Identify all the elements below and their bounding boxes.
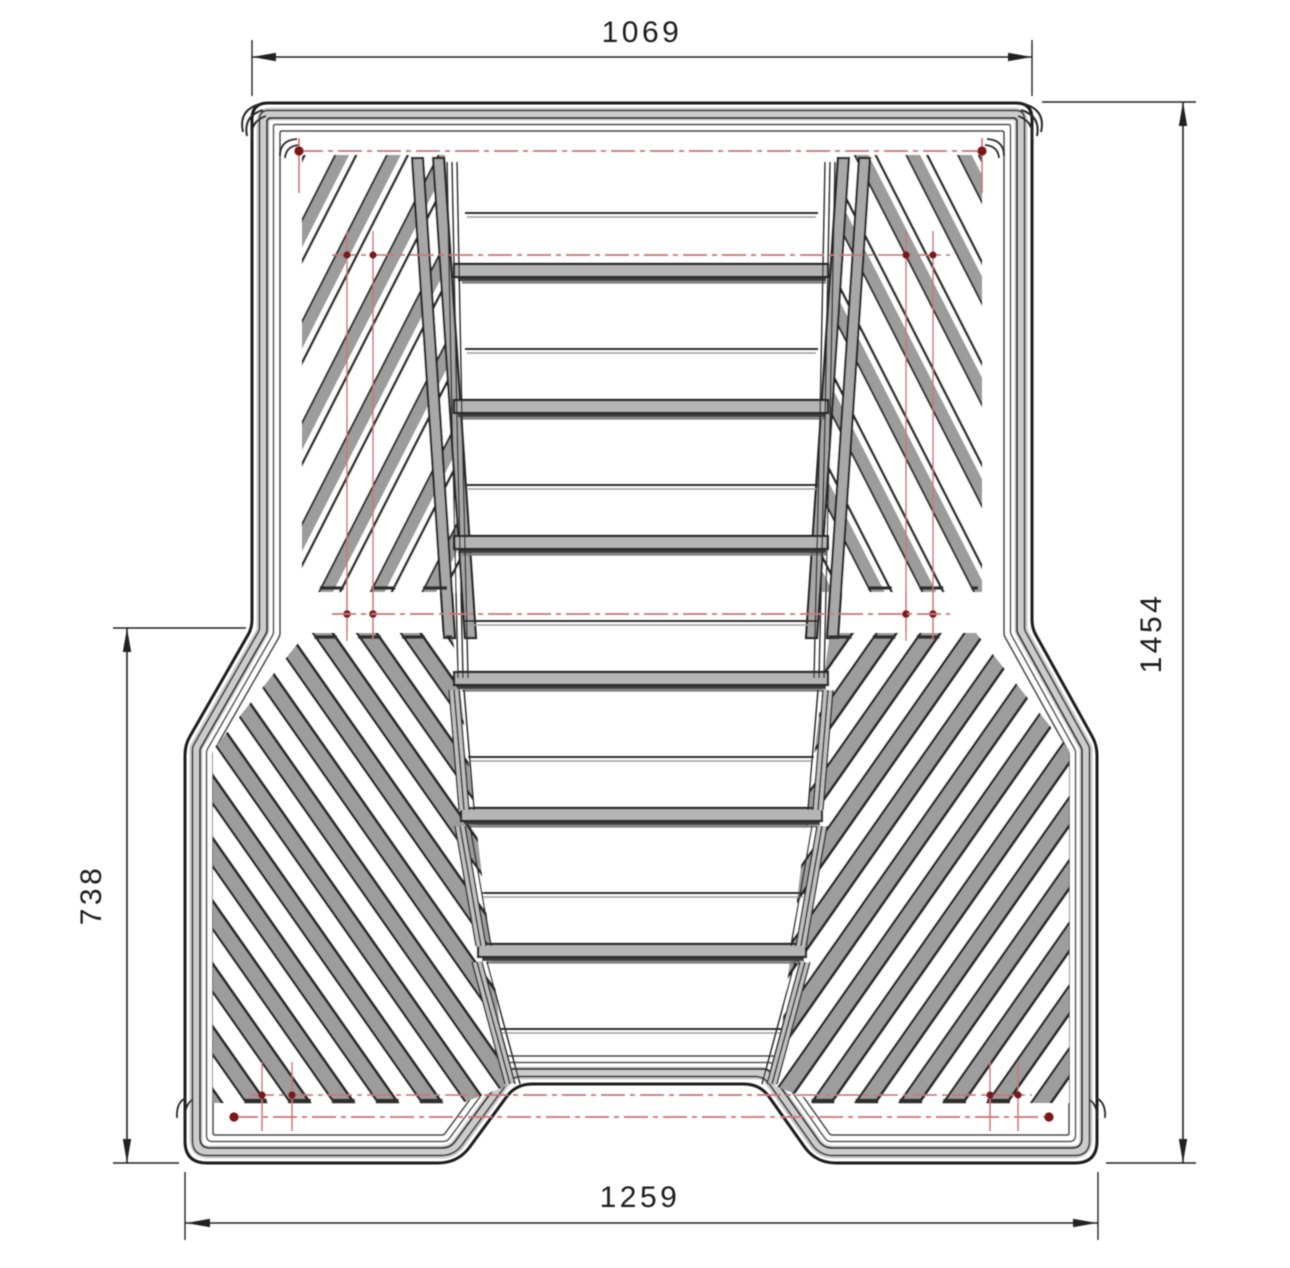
- svg-text:1069: 1069: [602, 16, 683, 49]
- svg-text:738: 738: [75, 865, 108, 926]
- svg-text:1454: 1454: [1135, 593, 1168, 674]
- svg-text:1259: 1259: [600, 1181, 681, 1214]
